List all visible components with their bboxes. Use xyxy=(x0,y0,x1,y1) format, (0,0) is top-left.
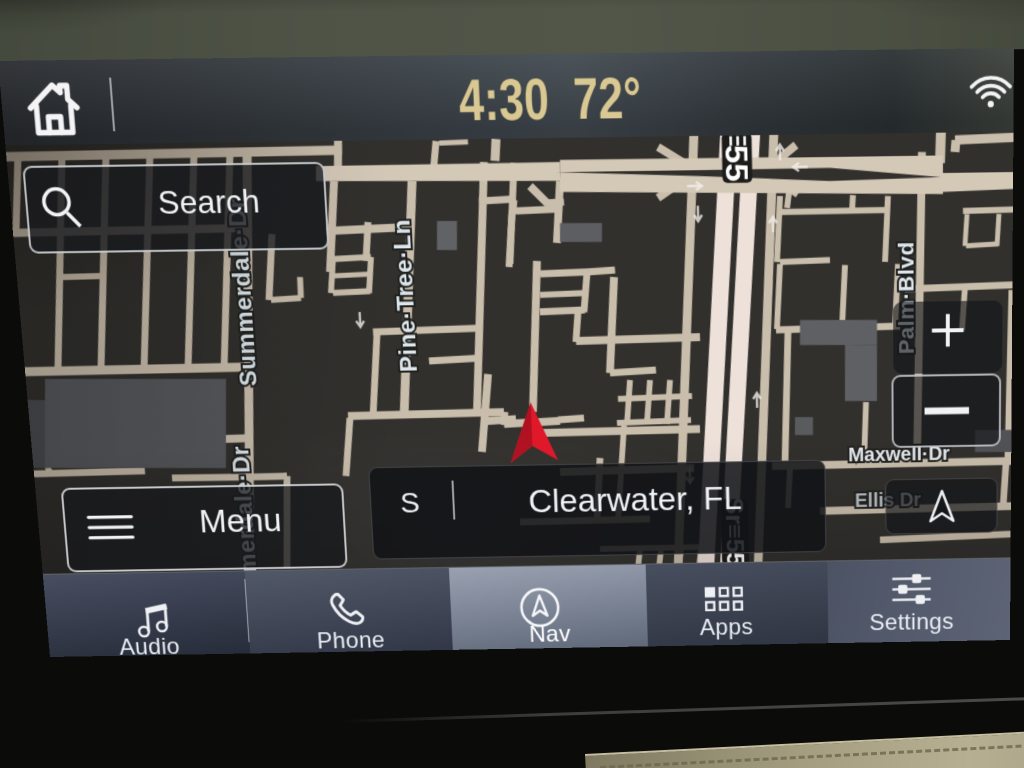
svg-text:55: 55 xyxy=(718,144,754,181)
